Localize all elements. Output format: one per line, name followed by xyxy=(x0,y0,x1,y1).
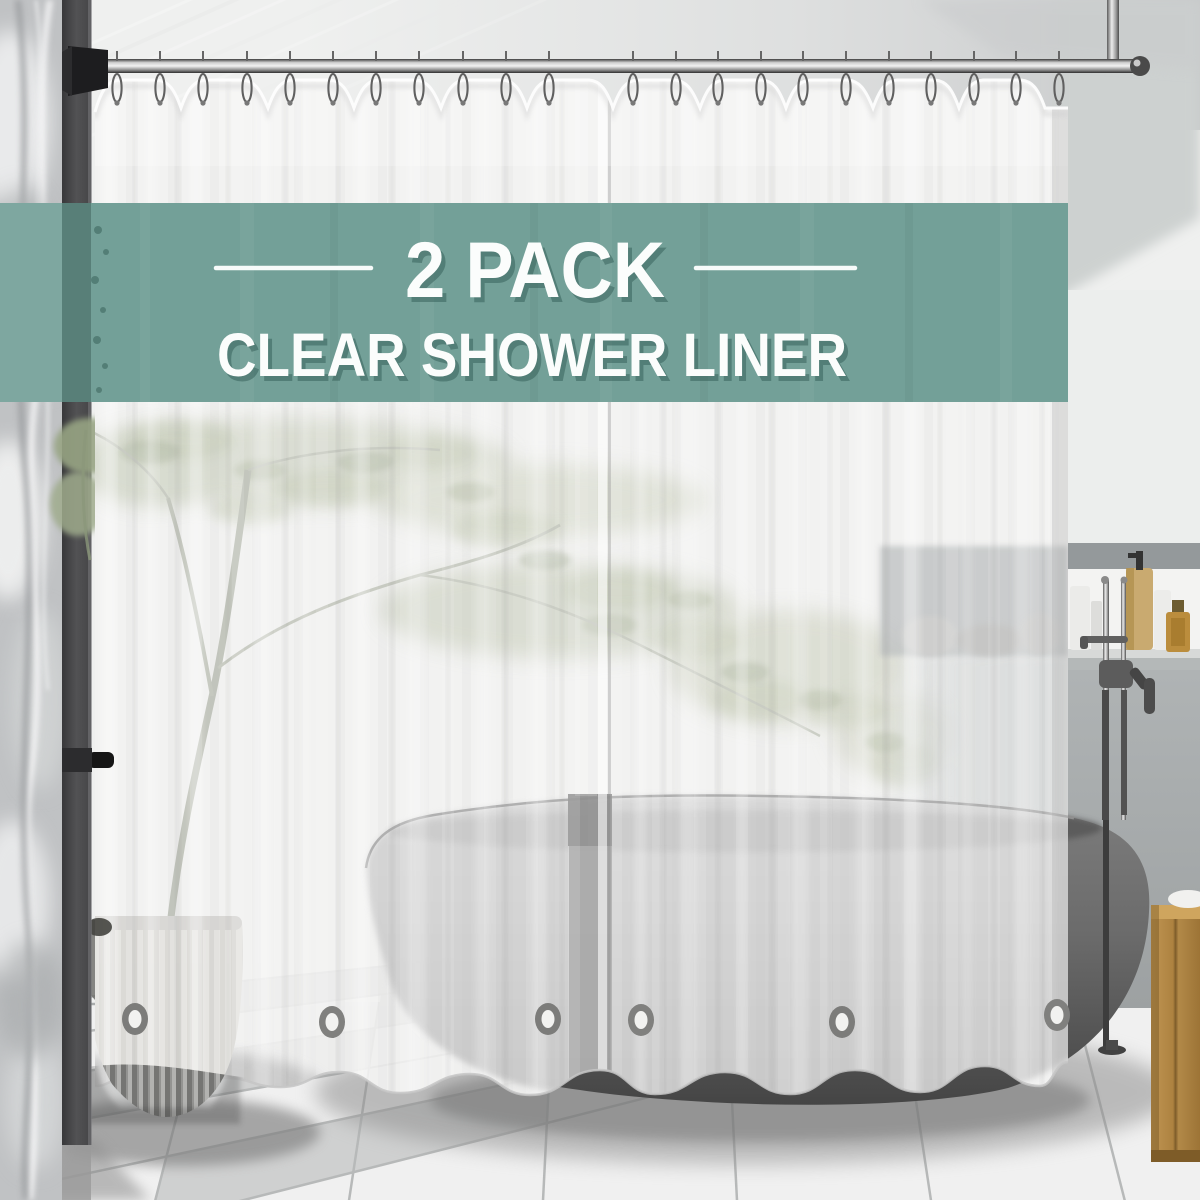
svg-text:CLEAR SHOWER LINER: CLEAR SHOWER LINER xyxy=(217,321,847,389)
svg-text:2 PACK: 2 PACK xyxy=(405,225,665,314)
